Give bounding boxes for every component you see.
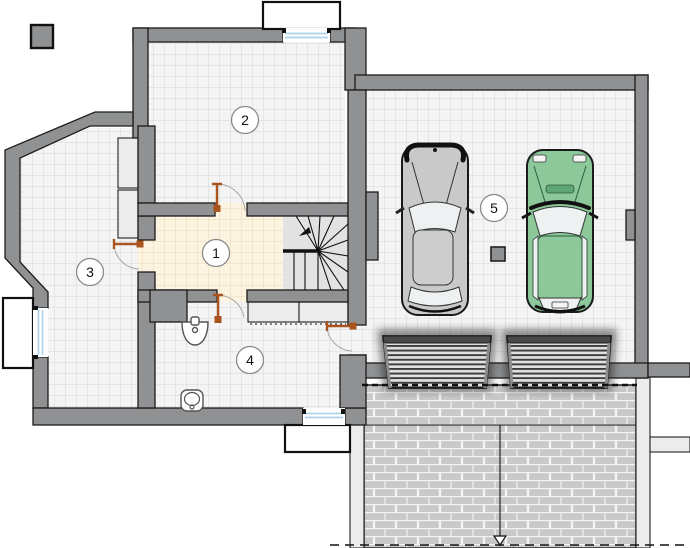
garage-sectional-door-icon: [507, 336, 611, 388]
room-3-cabinet-b: [118, 190, 138, 238]
wall-garage-divider: [348, 90, 366, 325]
window-well-icon: [285, 425, 350, 452]
wall-room3-room2-divider: [138, 126, 155, 203]
wall-garage-divider-pilaster: [366, 192, 378, 260]
car-top-view-green-icon: [522, 150, 598, 313]
wall-garage-right: [635, 75, 648, 378]
car-roof: [413, 230, 453, 285]
window-jamb: [282, 28, 286, 33]
room-label-text: 3: [86, 264, 94, 280]
car-top-view-gray-icon: [396, 145, 474, 315]
room-label-1: 1: [203, 240, 230, 267]
wall-room1-left-upper: [138, 216, 155, 240]
floor-plan-canvas: 1 2 3 4 5: [0, 0, 690, 548]
window-opening: [303, 408, 345, 425]
understair-closet-b: [299, 302, 348, 322]
window-icon: [302, 408, 345, 425]
car-windshield: [533, 207, 587, 237]
room-label-text: 5: [490, 200, 498, 216]
wall-room2-top-left: [133, 28, 283, 42]
garage-sectional-door-icon: [383, 336, 491, 388]
room-3-cabinet-a: [118, 138, 138, 188]
wall-garage-top: [355, 75, 648, 90]
wall-room1-top-left: [138, 203, 215, 216]
retaining-wall-stub: [650, 437, 690, 452]
car-license-plate: [552, 302, 568, 308]
room-label-5: 5: [481, 195, 508, 222]
window-jamb: [33, 355, 38, 359]
window-well-icon: [3, 298, 33, 368]
room-label-3: 3: [77, 259, 104, 286]
car-emblem: [433, 148, 437, 152]
wall-garage-right-pilaster: [626, 210, 635, 240]
car-cowl-vent: [546, 185, 574, 193]
retaining-wall-right: [636, 377, 650, 548]
car-headlight: [573, 155, 586, 162]
window-jamb: [341, 409, 345, 414]
floor-plan: 1 2 3 4 5: [0, 0, 690, 548]
car-windshield: [409, 202, 461, 232]
window-opening: [283, 28, 330, 42]
room-label-text: 1: [212, 245, 220, 261]
toilet-icon: [181, 390, 203, 411]
wall-room4-right: [340, 355, 366, 408]
car-side-windows: [533, 236, 538, 300]
window-opening: [33, 308, 48, 357]
wall-room1-top-right: [247, 203, 348, 216]
window-jamb: [302, 409, 306, 414]
window-well-icon: [263, 2, 340, 29]
wall-bottom-right: [345, 408, 366, 425]
room-label-2: 2: [232, 107, 259, 134]
wall-room3-left-lower: [33, 357, 48, 408]
wall-room2-left: [133, 28, 148, 138]
wall-stairs-bottom: [247, 290, 348, 302]
stair-floor: [283, 216, 348, 290]
car-headlight: [533, 155, 546, 162]
window-jamb: [327, 28, 331, 33]
column-icon: [491, 247, 505, 261]
car-side-windows: [582, 236, 587, 300]
room-label-text: 4: [246, 352, 254, 368]
room-label-4: 4: [237, 347, 264, 374]
room-label-text: 2: [241, 112, 249, 128]
retaining-wall-left: [350, 423, 364, 548]
understair-closet-a: [248, 302, 299, 322]
wall-bottom-left: [33, 408, 303, 425]
window-jamb: [33, 306, 38, 310]
column-icon: [31, 25, 53, 48]
window-icon: [33, 306, 48, 359]
wall-stub-right: [648, 363, 690, 377]
wall-room4-corner-block: [150, 290, 187, 322]
driveway: [330, 377, 690, 548]
window-icon: [282, 28, 331, 42]
